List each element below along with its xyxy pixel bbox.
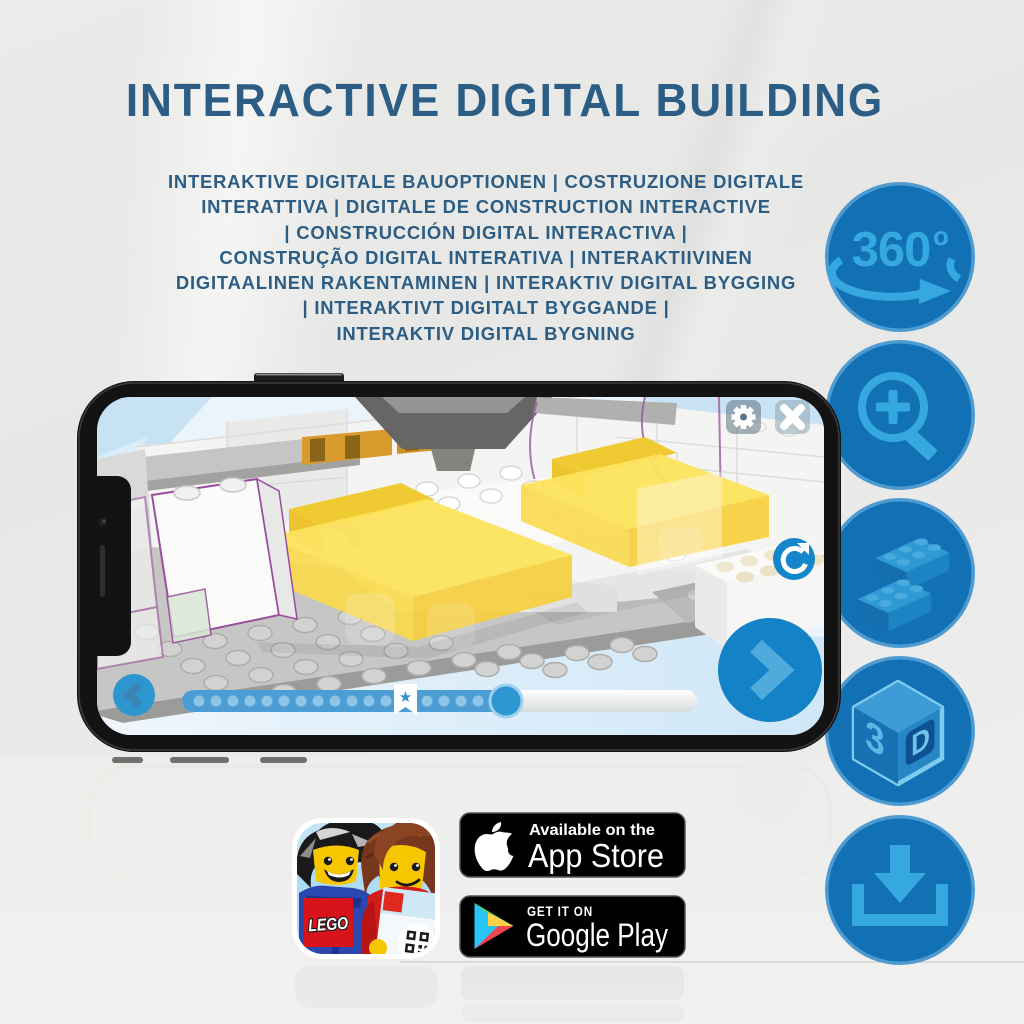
svg-text:o: o bbox=[933, 221, 949, 251]
svg-text:LEGO: LEGO bbox=[308, 914, 349, 936]
svg-text:360: 360 bbox=[852, 223, 931, 277]
svg-text:Google Play: Google Play bbox=[526, 917, 668, 953]
svg-text:★: ★ bbox=[399, 689, 412, 706]
svg-text:App Store: App Store bbox=[528, 837, 664, 874]
